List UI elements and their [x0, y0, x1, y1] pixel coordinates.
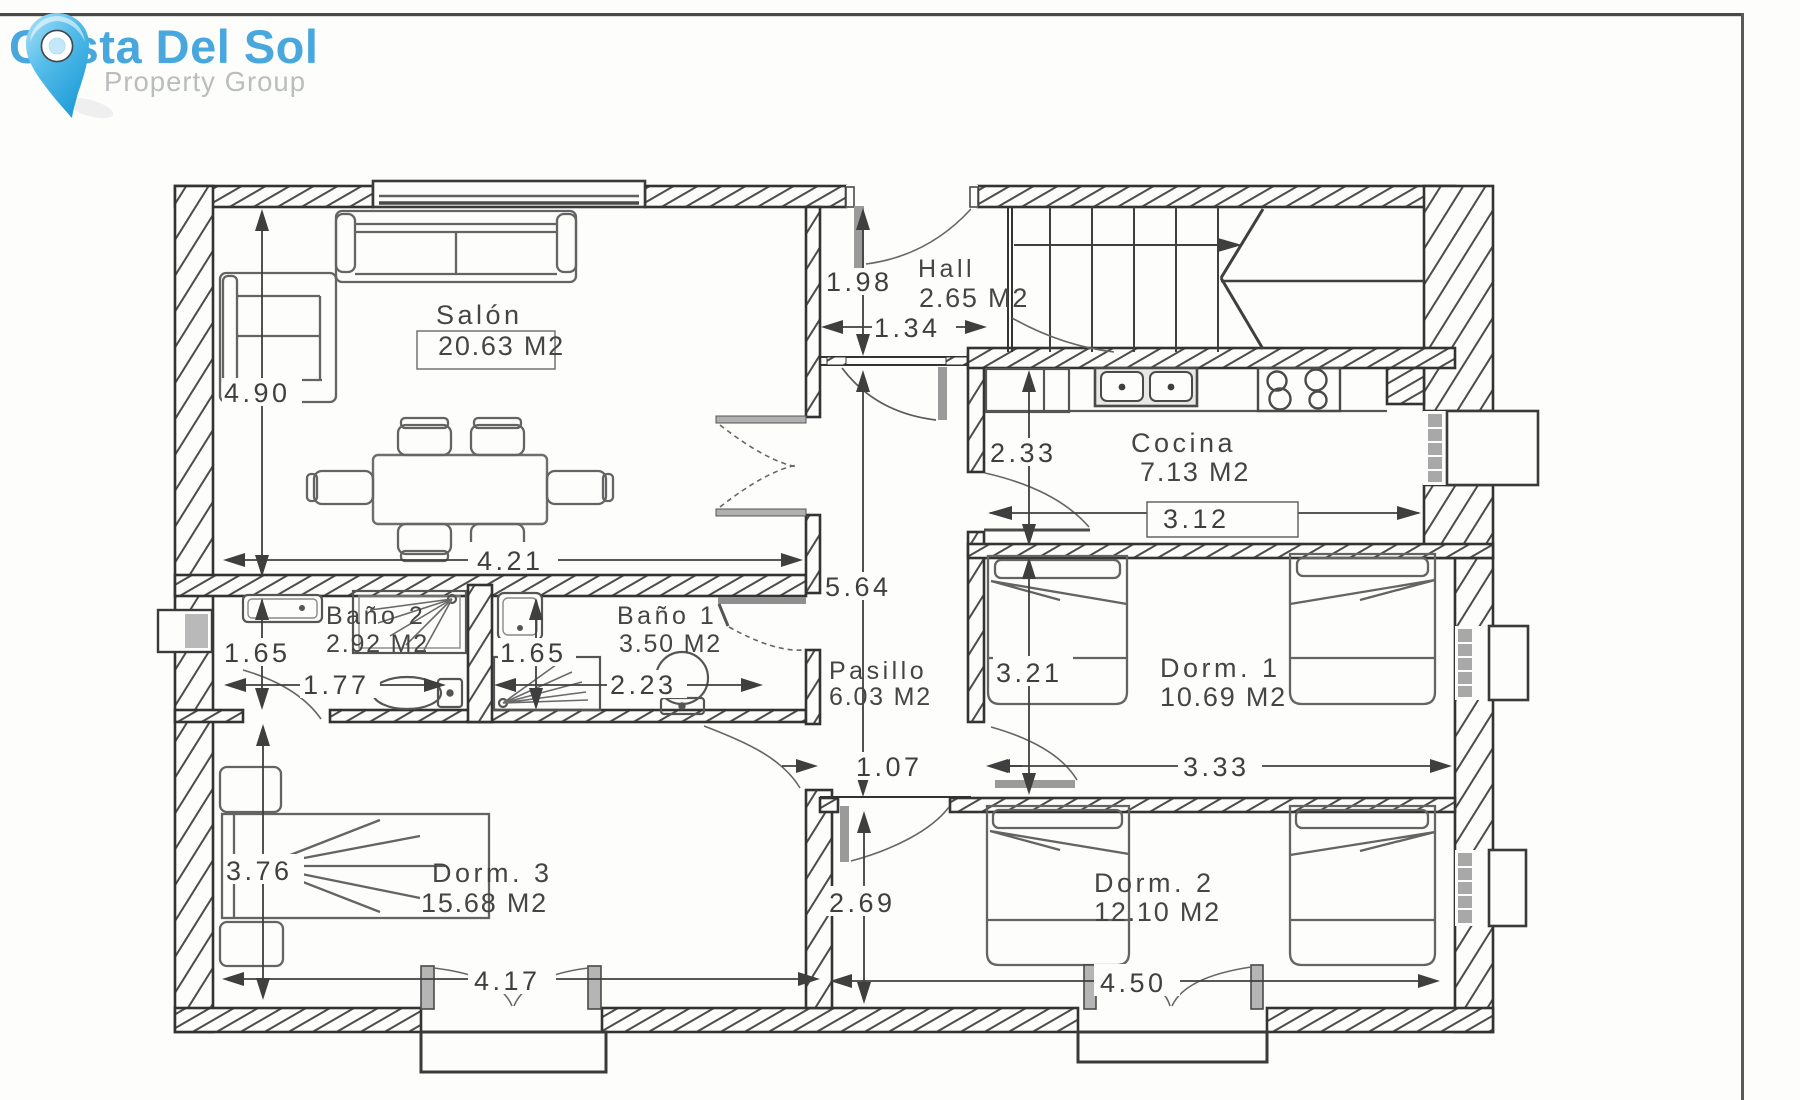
- svg-text:4.17: 4.17: [474, 966, 541, 996]
- svg-text:4.21: 4.21: [477, 546, 544, 576]
- svg-text:2.92 M2: 2.92 M2: [326, 630, 429, 658]
- svg-text:20.63 M2: 20.63 M2: [438, 331, 565, 361]
- svg-text:Baño 1: Baño 1: [617, 602, 717, 630]
- svg-text:1.65: 1.65: [224, 638, 291, 668]
- svg-text:1.77: 1.77: [303, 670, 370, 700]
- svg-text:6.03 M2: 6.03 M2: [829, 683, 932, 711]
- svg-text:Dorm. 1: Dorm. 1: [1160, 653, 1281, 683]
- svg-text:1.98: 1.98: [826, 267, 893, 297]
- svg-text:Baño 2: Baño 2: [326, 602, 426, 630]
- svg-text:4.50: 4.50: [1100, 968, 1167, 998]
- svg-text:2.33: 2.33: [990, 438, 1057, 468]
- svg-text:15.68 M2: 15.68 M2: [421, 888, 548, 918]
- svg-text:3.76: 3.76: [226, 856, 293, 886]
- svg-text:Pasillo: Pasillo: [829, 657, 927, 685]
- svg-text:5.64: 5.64: [825, 572, 892, 602]
- svg-text:Property Group: Property Group: [104, 66, 306, 97]
- svg-text:1.34: 1.34: [874, 313, 941, 343]
- svg-text:Hall: Hall: [918, 255, 975, 283]
- svg-text:12.10 M2: 12.10 M2: [1094, 897, 1221, 927]
- svg-text:1.65: 1.65: [500, 638, 567, 668]
- svg-text:2.69: 2.69: [829, 888, 896, 918]
- svg-text:Dorm. 3: Dorm. 3: [432, 858, 553, 888]
- svg-text:Cocina: Cocina: [1131, 428, 1236, 458]
- svg-text:7.13 M2: 7.13 M2: [1140, 457, 1250, 487]
- svg-text:2.65 M2: 2.65 M2: [919, 283, 1029, 313]
- svg-text:2.23: 2.23: [610, 670, 677, 700]
- svg-text:3.21: 3.21: [996, 658, 1063, 688]
- svg-text:1.07: 1.07: [856, 752, 923, 782]
- svg-text:Salón: Salón: [436, 300, 523, 330]
- svg-text:3.12: 3.12: [1163, 504, 1230, 534]
- svg-text:4.90: 4.90: [224, 378, 291, 408]
- svg-text:3.33: 3.33: [1183, 752, 1250, 782]
- svg-text:Dorm. 2: Dorm. 2: [1094, 868, 1215, 898]
- svg-text:10.69 M2: 10.69 M2: [1160, 682, 1287, 712]
- svg-text:3.50 M2: 3.50 M2: [619, 630, 722, 658]
